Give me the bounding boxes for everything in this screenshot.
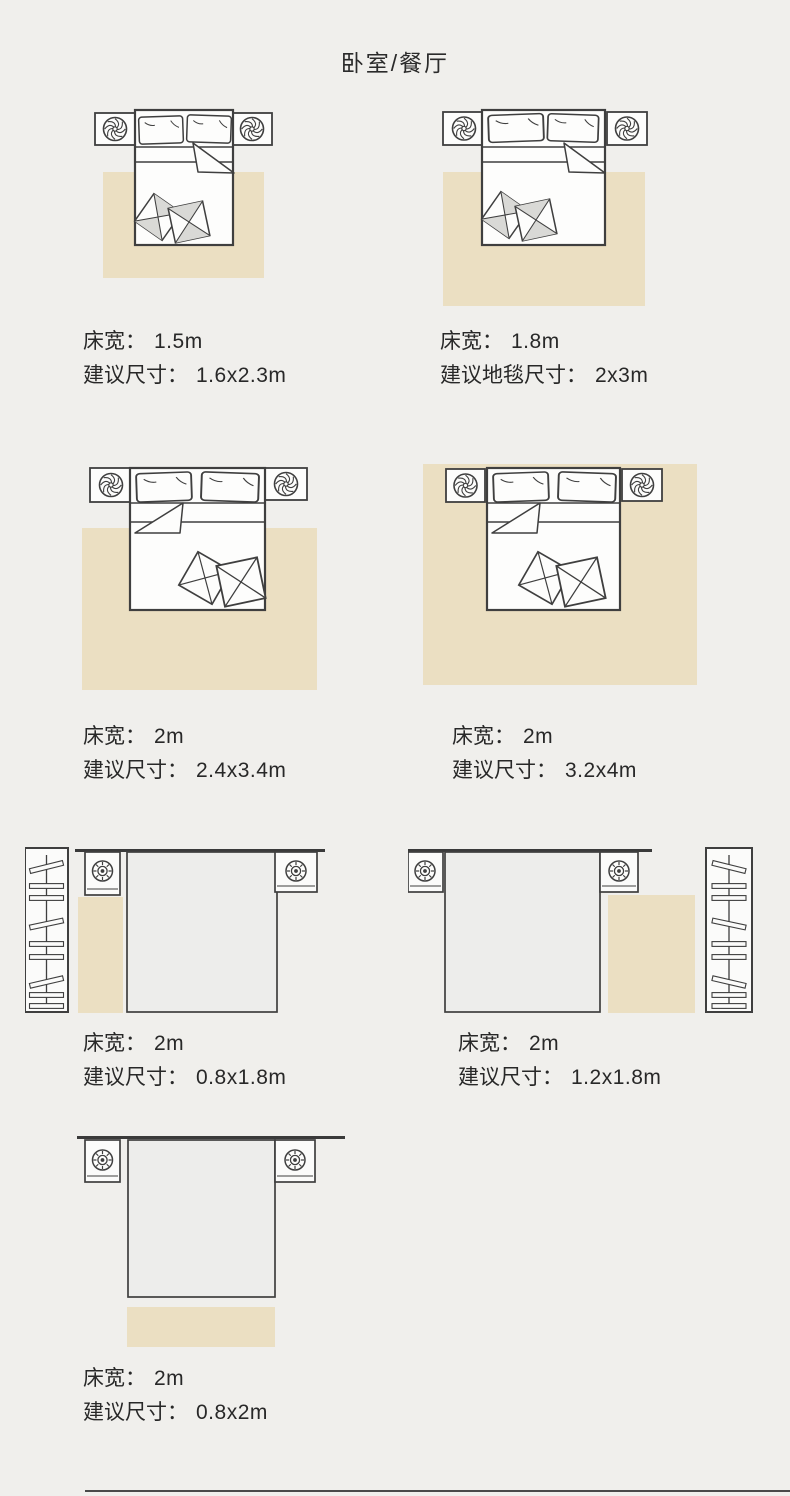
diagram-bed-rug-4 xyxy=(423,462,699,687)
runner-rug xyxy=(78,897,123,1013)
bed-width-label: 床宽： xyxy=(83,328,146,355)
figure-caption-2: 床宽：1.8m 建议地毯尺寸：2x3m xyxy=(440,328,648,396)
rug-size-label: 建议尺寸： xyxy=(83,362,188,389)
rug-size-label: 建议尺寸： xyxy=(83,1399,188,1426)
bed-width-value: 2m xyxy=(154,1030,184,1057)
runner-rug xyxy=(127,1307,275,1347)
bed-width-label: 床宽： xyxy=(452,723,515,750)
bed-width-label: 床宽： xyxy=(83,1030,146,1057)
bed-width-value: 1.5m xyxy=(154,328,203,355)
bed-width-label: 床宽： xyxy=(83,723,146,750)
rug-size-label: 建议地毯尺寸： xyxy=(440,362,587,389)
bed-width-value: 2m xyxy=(529,1030,559,1057)
infographic-page: 卧室/餐厅 xyxy=(0,0,790,1496)
rug-size-value: 1.2x1.8m xyxy=(571,1064,661,1091)
page-title: 卧室/餐厅 xyxy=(0,44,790,78)
bed-width-value: 1.8m xyxy=(511,328,560,355)
figure-caption-4: 床宽：2m 建议尺寸：3.2x4m xyxy=(452,723,637,791)
bed-width-label: 床宽： xyxy=(440,328,503,355)
rug-size-value: 0.8x1.8m xyxy=(196,1064,286,1091)
rug-size-value: 2.4x3.4m xyxy=(196,757,286,784)
bed xyxy=(445,852,600,1012)
bed-width-label: 床宽： xyxy=(458,1030,521,1057)
diagram-bed-rug-2 xyxy=(435,105,655,310)
rug-size-value: 0.8x2m xyxy=(196,1399,268,1426)
runner-rug xyxy=(608,895,695,1013)
diagram-bed-rug-1 xyxy=(85,105,275,285)
diagram-bed-runner-6 xyxy=(408,845,758,1017)
wardrobe xyxy=(25,848,68,1012)
wardrobe xyxy=(706,848,752,1012)
rug-size-value: 2x3m xyxy=(595,362,648,389)
figure-caption-6: 床宽：2m 建议尺寸：1.2x1.8m xyxy=(458,1030,661,1098)
bed-width-label: 床宽： xyxy=(83,1365,146,1392)
bed-width-value: 2m xyxy=(523,723,553,750)
rug-size-label: 建议尺寸： xyxy=(452,757,557,784)
diagram-bed-runner-7 xyxy=(75,1130,350,1350)
bed-width-value: 2m xyxy=(154,723,184,750)
figure-caption-5: 床宽：2m 建议尺寸：0.8x1.8m xyxy=(83,1030,286,1098)
bed-width-value: 2m xyxy=(154,1365,184,1392)
figure-caption-3: 床宽：2m 建议尺寸：2.4x3.4m xyxy=(83,723,286,791)
rug-size-label: 建议尺寸： xyxy=(83,1064,188,1091)
rug-size-label: 建议尺寸： xyxy=(458,1064,563,1091)
rug-size-value: 1.6x2.3m xyxy=(196,362,286,389)
bottom-divider xyxy=(85,1490,790,1492)
rug-size-label: 建议尺寸： xyxy=(83,757,188,784)
rug-size-value: 3.2x4m xyxy=(565,757,637,784)
diagram-bed-rug-3 xyxy=(78,462,318,692)
figure-caption-1: 床宽：1.5m 建议尺寸：1.6x2.3m xyxy=(83,328,286,396)
bed xyxy=(127,852,277,1012)
wall xyxy=(77,1136,345,1139)
figure-caption-7: 床宽：2m 建议尺寸：0.8x2m xyxy=(83,1365,268,1433)
diagram-bed-runner-5 xyxy=(25,845,325,1017)
bed xyxy=(128,1140,275,1297)
